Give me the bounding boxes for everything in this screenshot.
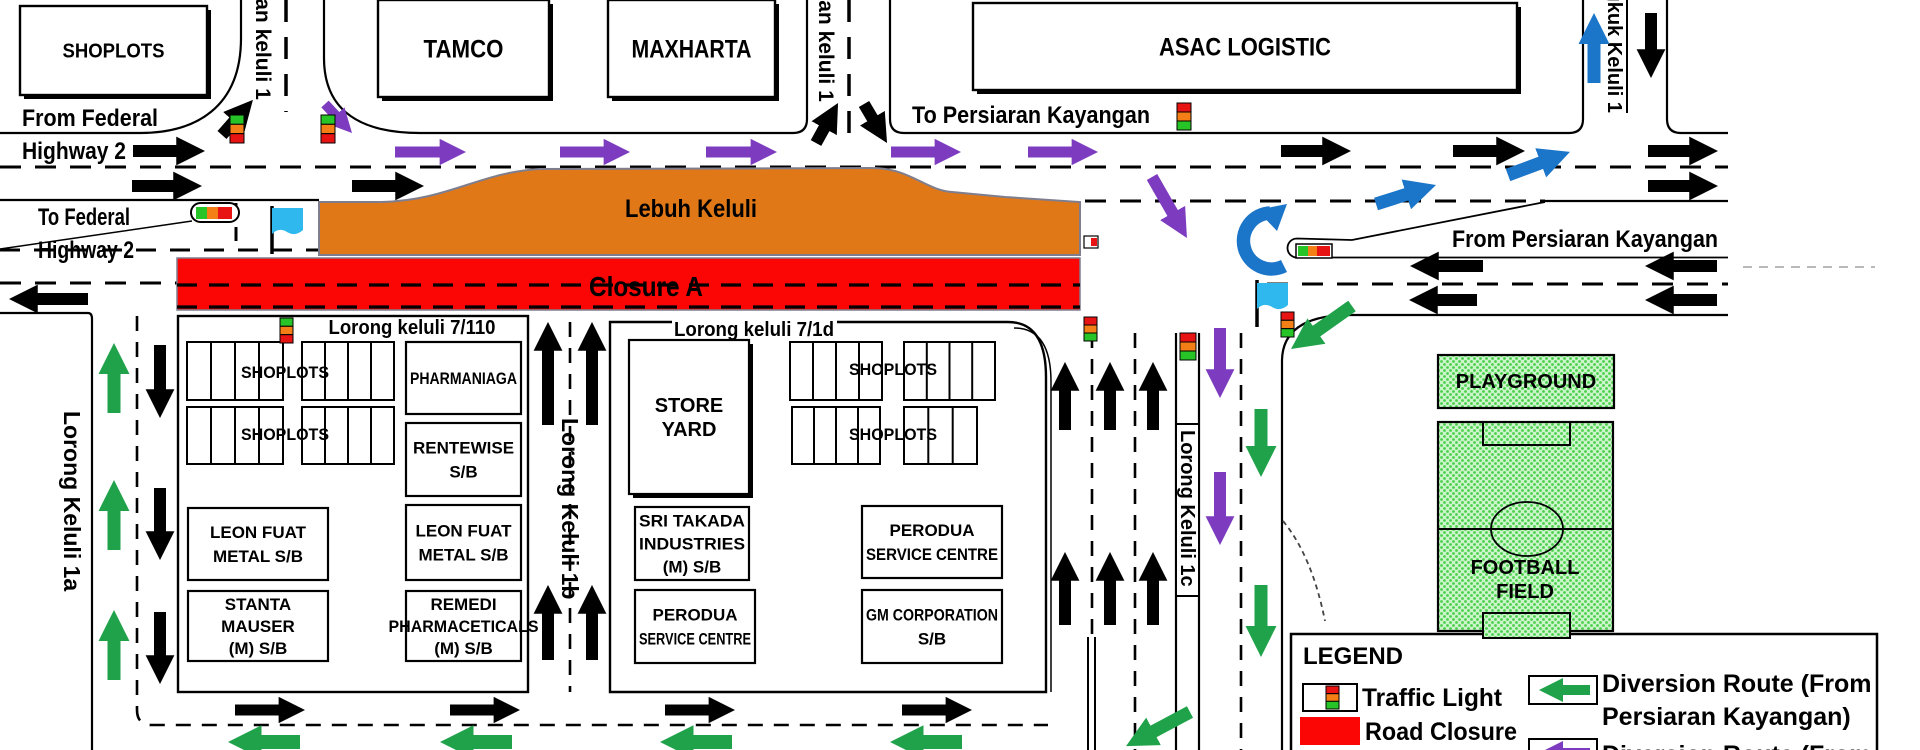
svg-text:LEGEND: LEGEND: [1303, 643, 1403, 670]
svg-text:PHARMACETICALS: PHARMACETICALS: [389, 617, 539, 636]
svg-text:Lengkuk Keluli 1: Lengkuk Keluli 1: [1603, 0, 1625, 113]
svg-text:Lorong keluli 7/1d: Lorong keluli 7/1d: [674, 319, 834, 341]
svg-text:From Federal: From Federal: [22, 105, 158, 132]
svg-text:To Federal: To Federal: [38, 204, 130, 231]
svg-text:ASAC LOGISTIC: ASAC LOGISTIC: [1159, 33, 1331, 61]
svg-text:To Persiaran Kayangan: To Persiaran Kayangan: [912, 102, 1150, 129]
svg-text:Road Closure: Road Closure: [1365, 718, 1517, 746]
svg-text:SHOPLOTS: SHOPLOTS: [63, 41, 165, 63]
svg-text:Lorong keluli 7/110: Lorong keluli 7/110: [329, 317, 496, 339]
svg-text:FOOTBALL: FOOTBALL: [1471, 557, 1580, 579]
svg-text:LEON FUAT: LEON FUAT: [415, 521, 512, 540]
svg-text:GM CORPORATION: GM CORPORATION: [866, 605, 998, 624]
svg-text:PERODUA: PERODUA: [889, 521, 974, 540]
svg-text:(M) S/B: (M) S/B: [229, 639, 288, 658]
svg-text:(M) S/B: (M) S/B: [663, 557, 722, 576]
svg-text:Diversion Route (From: Diversion Route (From: [1602, 741, 1871, 750]
svg-text:Persiaran Kayangan): Persiaran Kayangan): [1602, 703, 1851, 731]
svg-text:Diversion Route (From: Diversion Route (From: [1602, 670, 1871, 698]
svg-text:PLAYGROUND: PLAYGROUND: [1456, 371, 1596, 393]
svg-text:S/B: S/B: [918, 629, 946, 648]
svg-text:TAMCO: TAMCO: [424, 35, 504, 63]
svg-text:(M) S/B: (M) S/B: [434, 639, 493, 658]
svg-text:SHOPLOTS: SHOPLOTS: [849, 425, 937, 444]
svg-text:INDUSTRIES: INDUSTRIES: [639, 534, 745, 553]
svg-text:MAUSER: MAUSER: [221, 617, 295, 636]
svg-text:REMEDI: REMEDI: [430, 595, 496, 614]
svg-text:Closure A: Closure A: [589, 271, 703, 302]
svg-text:Lorong Keluli 1c: Lorong Keluli 1c: [1176, 430, 1198, 587]
svg-text:STORE: STORE: [655, 395, 724, 417]
svg-text:SRI TAKADA: SRI TAKADA: [639, 511, 745, 530]
svg-text:SHOPLOTS: SHOPLOTS: [241, 425, 329, 444]
svg-text:MAXHARTA: MAXHARTA: [632, 35, 752, 63]
svg-text:METAL S/B: METAL S/B: [418, 545, 508, 564]
svg-text:SERVICE CENTRE: SERVICE CENTRE: [866, 545, 998, 564]
svg-text:Highway 2: Highway 2: [38, 237, 134, 264]
svg-text:STANTA: STANTA: [225, 595, 291, 614]
svg-text:From Persiaran Kayangan: From Persiaran Kayangan: [1452, 226, 1718, 253]
svg-text:Lebuh Keluli: Lebuh Keluli: [625, 195, 757, 223]
svg-text:Persiaran keluli 1: Persiaran keluli 1: [251, 0, 274, 100]
svg-text:SHOPLOTS: SHOPLOTS: [241, 363, 329, 382]
svg-text:RENTEWISE: RENTEWISE: [413, 438, 514, 457]
svg-text:YARD: YARD: [662, 419, 717, 441]
svg-text:Traffic Light: Traffic Light: [1362, 684, 1503, 712]
svg-text:PERODUA: PERODUA: [652, 605, 737, 624]
svg-text:S/B: S/B: [449, 462, 477, 481]
svg-text:Persiaran keluli 1: Persiaran keluli 1: [814, 0, 837, 102]
svg-text:SERVICE CENTRE: SERVICE CENTRE: [639, 629, 751, 648]
svg-text:FIELD: FIELD: [1496, 581, 1554, 603]
svg-text:Lorong Keluli 1b: Lorong Keluli 1b: [557, 418, 583, 599]
svg-text:METAL S/B: METAL S/B: [213, 547, 303, 566]
svg-text:Highway 2: Highway 2: [22, 138, 126, 165]
svg-text:SHOPLOTS: SHOPLOTS: [849, 360, 937, 379]
svg-text:Lorong Keluli 1a: Lorong Keluli 1a: [59, 411, 85, 591]
svg-text:LEON FUAT: LEON FUAT: [210, 523, 307, 542]
svg-text:PHARMANIAGA: PHARMANIAGA: [410, 369, 517, 388]
